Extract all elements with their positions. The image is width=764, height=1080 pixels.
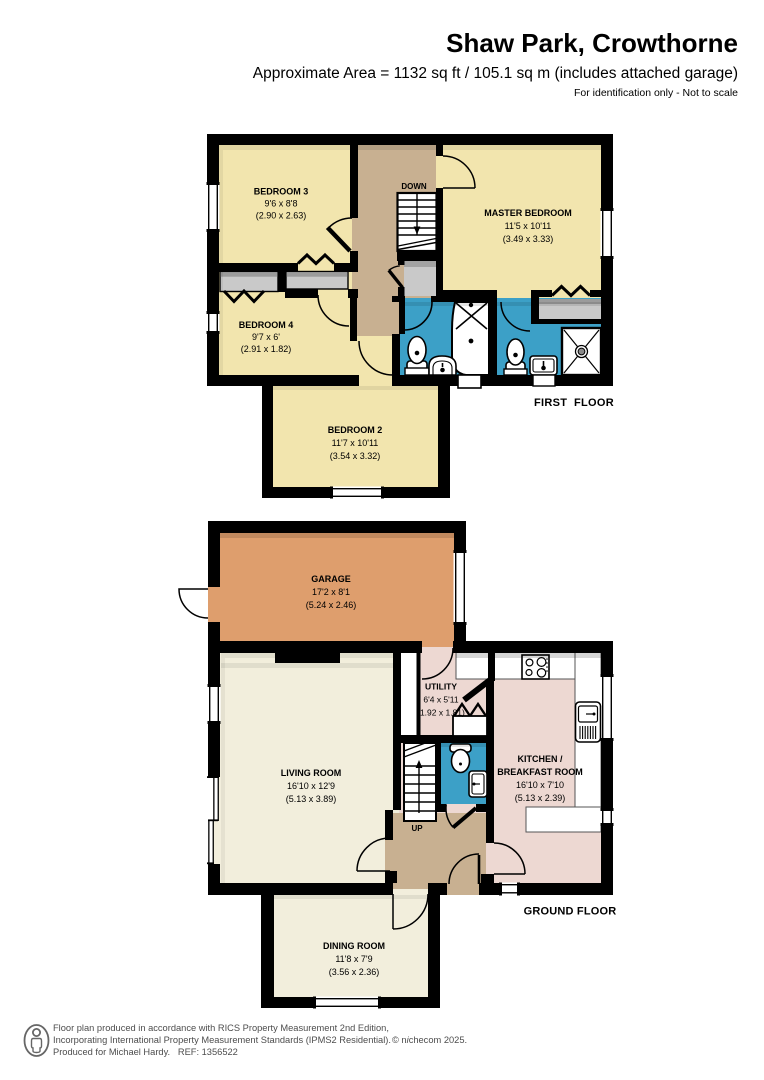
svg-text:FIRST FLOOR: FIRST FLOOR bbox=[534, 397, 614, 409]
svg-text:16'10 x 12'9: 16'10 x 12'9 bbox=[287, 781, 335, 791]
svg-text:(2.90 x 2.63): (2.90 x 2.63) bbox=[256, 211, 307, 221]
svg-text:LIVING ROOM: LIVING ROOM bbox=[281, 768, 342, 778]
svg-text:17'2 x 8'1: 17'2 x 8'1 bbox=[312, 587, 350, 597]
svg-text:(2.91 x 1.82): (2.91 x 1.82) bbox=[241, 344, 292, 354]
svg-text:Produced for Michael Hardy.: Produced for Michael Hardy. REF: 1356522 bbox=[53, 1047, 238, 1057]
svg-text:Floor plan produced in accorda: Floor plan produced in accordance with R… bbox=[53, 1023, 389, 1033]
svg-text:6'4 x 5'11: 6'4 x 5'11 bbox=[423, 695, 458, 705]
svg-text:For identification only - Not: For identification only - Not to scale bbox=[574, 87, 738, 99]
svg-text:GARAGE: GARAGE bbox=[311, 574, 351, 584]
svg-text:DOWN: DOWN bbox=[401, 182, 427, 191]
svg-text:BEDROOM 4: BEDROOM 4 bbox=[239, 320, 294, 330]
svg-text:(5.13 x 3.89): (5.13 x 3.89) bbox=[286, 794, 337, 804]
svg-text:MASTER BEDROOM: MASTER BEDROOM bbox=[484, 208, 572, 218]
svg-text:11'7 x 10'11: 11'7 x 10'11 bbox=[332, 438, 379, 448]
svg-text:KITCHEN /: KITCHEN / bbox=[518, 754, 563, 764]
svg-text:© nichecom 2025.: © nichecom 2025. bbox=[392, 1035, 467, 1045]
svg-text:(1.92 x 1.81): (1.92 x 1.81) bbox=[417, 708, 465, 718]
svg-text:Shaw Park, Crowthorne: Shaw Park, Crowthorne bbox=[446, 28, 738, 58]
svg-text:DINING ROOM: DINING ROOM bbox=[323, 941, 385, 951]
svg-text:(5.24 x 2.46): (5.24 x 2.46) bbox=[306, 600, 357, 610]
svg-text:UP: UP bbox=[411, 824, 423, 833]
svg-text:BREAKFAST ROOM: BREAKFAST ROOM bbox=[497, 767, 583, 777]
svg-text:9'6 x 8'8: 9'6 x 8'8 bbox=[265, 199, 298, 209]
svg-text:UTILITY: UTILITY bbox=[425, 682, 457, 692]
svg-text:11'8 x 7'9: 11'8 x 7'9 bbox=[335, 954, 372, 964]
svg-text:(5.13 x 2.39): (5.13 x 2.39) bbox=[515, 793, 566, 803]
svg-text:BEDROOM 3: BEDROOM 3 bbox=[254, 187, 309, 197]
svg-text:Incorporating International Pr: Incorporating International Property Mea… bbox=[53, 1035, 391, 1045]
svg-text:9'7 x 6': 9'7 x 6' bbox=[252, 332, 280, 342]
svg-text:16'10 x 7'10: 16'10 x 7'10 bbox=[516, 780, 564, 790]
svg-text:(3.56 x 2.36): (3.56 x 2.36) bbox=[329, 967, 380, 977]
svg-text:BEDROOM 2: BEDROOM 2 bbox=[328, 425, 383, 435]
svg-text:(3.54 x 3.32): (3.54 x 3.32) bbox=[330, 451, 381, 461]
svg-text:Approximate Area = 1132 sq ft: Approximate Area = 1132 sq ft / 105.1 sq… bbox=[253, 65, 738, 82]
svg-text:11'5 x 10'11: 11'5 x 10'11 bbox=[505, 221, 552, 231]
svg-text:(3.49 x 3.33): (3.49 x 3.33) bbox=[503, 234, 554, 244]
svg-text:GROUND FLOOR: GROUND FLOOR bbox=[524, 906, 617, 918]
